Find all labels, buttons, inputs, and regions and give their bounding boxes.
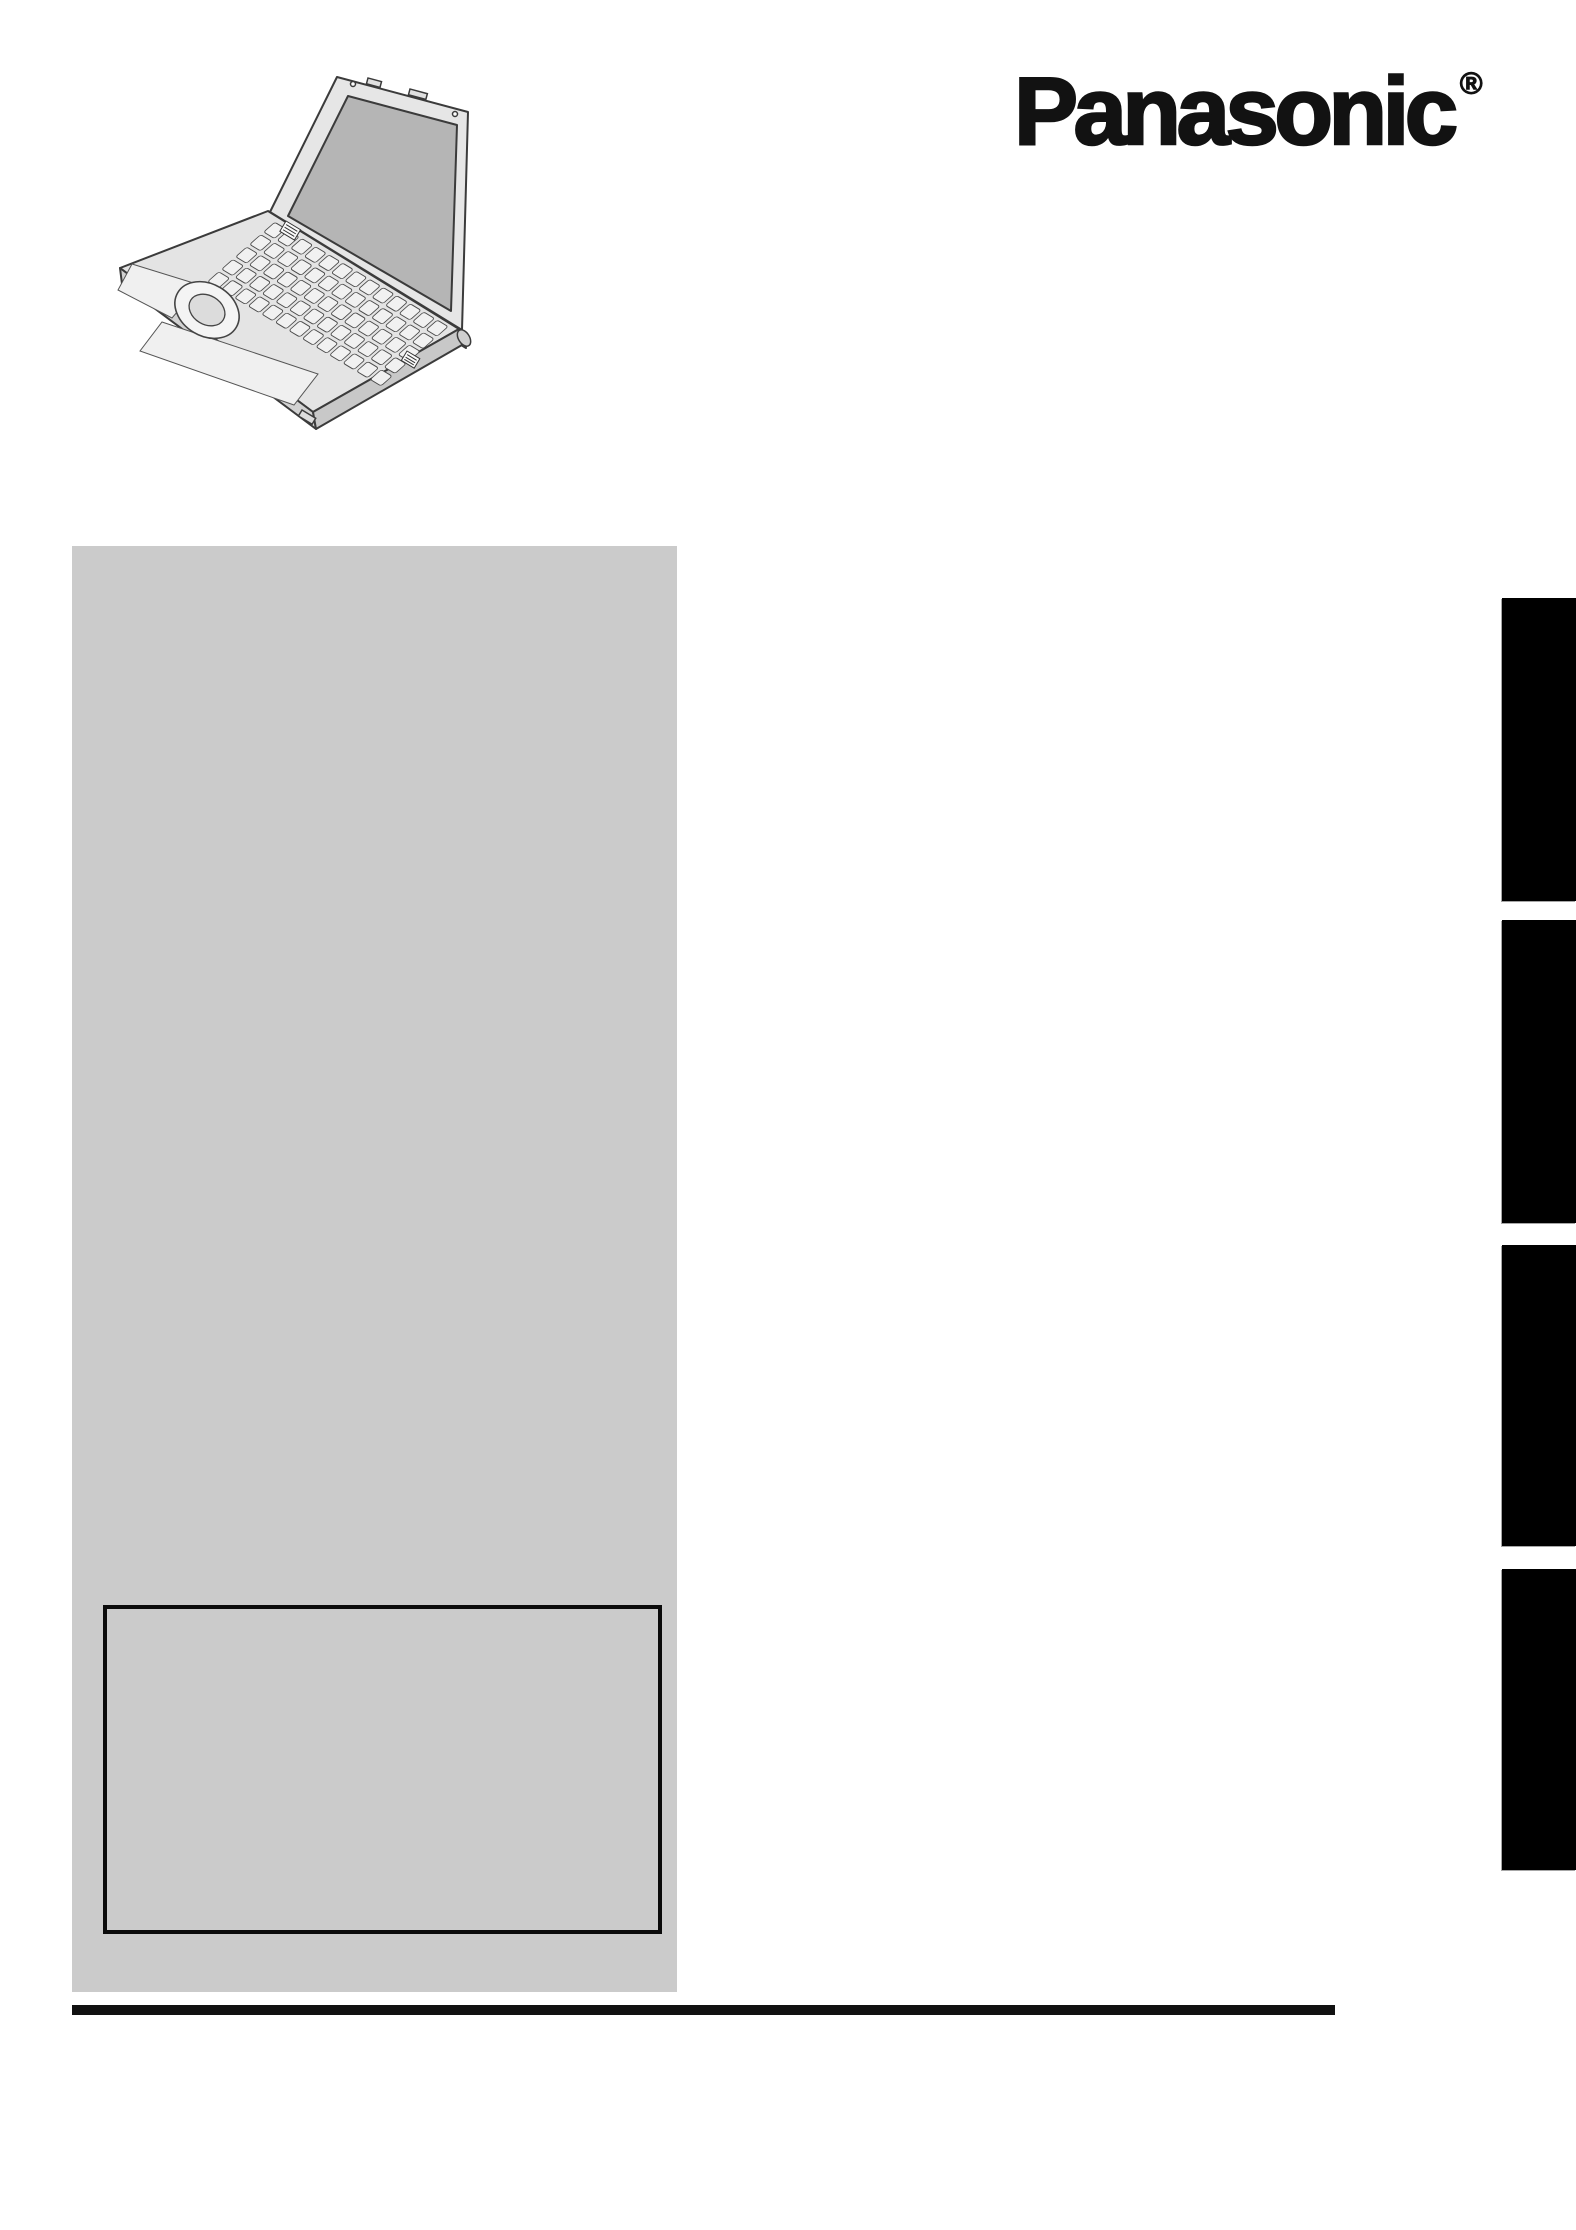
- logo-text: Panasonic: [1014, 58, 1454, 165]
- info-box: [103, 1605, 662, 1934]
- bottom-rule: [72, 2005, 1335, 2015]
- section-tab-1: [1502, 598, 1576, 901]
- section-tab-2: [1502, 920, 1576, 1223]
- section-tab-3: [1502, 1245, 1576, 1546]
- section-tab-4: [1502, 1569, 1576, 1870]
- panasonic-logo: Panasonic®: [1014, 64, 1483, 162]
- laptop-illustration: [110, 58, 500, 438]
- manual-cover-page: Panasonic®: [0, 0, 1576, 2230]
- registered-trademark-icon: ®: [1460, 66, 1483, 101]
